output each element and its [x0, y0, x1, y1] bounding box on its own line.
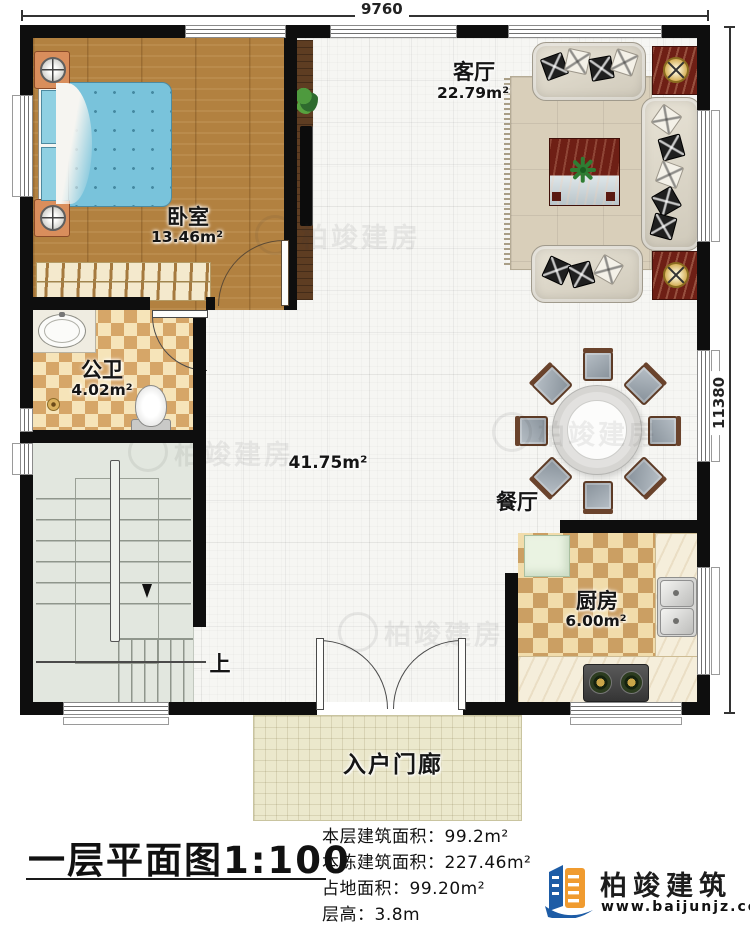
- table-lamp-icon: [40, 57, 66, 83]
- window: [697, 350, 710, 462]
- room-area-living: 22.79m²: [437, 84, 509, 102]
- toilet-bowl: [135, 385, 167, 427]
- entrance-door-leaf: [458, 638, 466, 710]
- floor-drain-icon: [47, 398, 60, 411]
- window: [508, 25, 662, 38]
- wall-segment: [193, 310, 206, 443]
- wall-segment: [697, 673, 710, 715]
- table-lamp-icon: [40, 205, 66, 231]
- wall-segment: [505, 573, 518, 702]
- room-label-dining: 餐厅: [496, 486, 538, 516]
- dimension-tick: [21, 10, 23, 21]
- wall-segment: [206, 297, 215, 310]
- wall-segment: [20, 195, 33, 408]
- wall-segment: [284, 25, 330, 38]
- wall-segment: [167, 702, 317, 715]
- stat-colon: ：: [427, 827, 445, 847]
- window-sill: [711, 110, 720, 242]
- sink-drain-icon: [673, 590, 679, 596]
- watermark-text: 柏竣建房: [384, 613, 504, 652]
- window: [20, 443, 33, 475]
- stair-direction-arrow-icon: [142, 584, 152, 598]
- window: [697, 567, 710, 675]
- pillow: [564, 48, 591, 75]
- stat-colon: ：: [427, 853, 445, 873]
- bathroom-sink-basin: [44, 319, 80, 343]
- stat-row: 本栋建筑面积：227.46m²: [322, 848, 531, 873]
- title-underline: [26, 878, 326, 880]
- window: [20, 95, 33, 197]
- wall-segment: [20, 25, 185, 38]
- window-sill: [570, 717, 682, 725]
- dining-chair: [583, 351, 613, 381]
- stat-label: 本层建筑面积: [322, 827, 427, 847]
- wall-segment: [697, 25, 710, 110]
- plan-title: 一层平面图: [28, 839, 223, 882]
- wall-segment: [20, 473, 33, 715]
- stat-value: 227.46m²: [445, 853, 532, 873]
- coffee-table-leg: [552, 192, 561, 201]
- stair-treads: [36, 498, 110, 608]
- stat-colon: ：: [357, 905, 375, 925]
- stat-row: 层高：3.8m: [322, 900, 420, 925]
- stat-colon: ：: [392, 879, 410, 899]
- floor-plan-page: 9760 11380: [0, 0, 750, 930]
- coffee-table-leg: [606, 192, 615, 201]
- fridge: [524, 535, 570, 577]
- stair-rail: [110, 460, 120, 642]
- wall-segment: [455, 25, 508, 38]
- watermark-text: 柏竣建房: [301, 216, 421, 255]
- window-sill: [63, 717, 169, 725]
- room-label-bedroom: 卧室: [167, 201, 209, 231]
- brand-logo-icon: [543, 860, 595, 918]
- stair-guide-line: [36, 661, 206, 663]
- stove-burner-icon: [620, 671, 643, 694]
- window: [20, 408, 33, 432]
- brand-name: 柏竣建筑: [600, 864, 732, 903]
- wall-segment: [33, 297, 150, 310]
- watermark-ring-icon: [492, 412, 532, 452]
- wall-segment: [20, 430, 206, 443]
- room-label-living: 客厅: [453, 56, 495, 86]
- watermark: 柏竣建房: [492, 412, 658, 452]
- dimension-tick: [724, 26, 735, 28]
- faucet-icon: [59, 312, 65, 317]
- wall-segment: [697, 460, 710, 567]
- window: [63, 702, 169, 715]
- watermark-text: 柏竣建房: [538, 413, 658, 452]
- dining-chair: [583, 481, 613, 511]
- dimension-label-height: 11380: [710, 371, 728, 435]
- room-label-kitchen: 厨房: [576, 585, 618, 615]
- stair-treads: [118, 498, 191, 608]
- wardrobe: [36, 262, 211, 301]
- room-label-porch: 入户门廊: [343, 745, 443, 779]
- wall-segment: [20, 25, 33, 95]
- window: [697, 110, 710, 242]
- room-area-hall: 41.75m²: [289, 453, 368, 473]
- wall-segment: [697, 240, 710, 350]
- stat-row: 占地面积：99.20m²: [322, 874, 485, 899]
- stat-row: 本层建筑面积：99.2m²: [322, 822, 509, 847]
- window: [330, 25, 457, 38]
- stat-value: 99.2m²: [445, 827, 509, 847]
- wall-segment: [463, 702, 570, 715]
- window: [185, 25, 286, 38]
- stair-treads: [118, 640, 193, 702]
- brand-website[interactable]: www.baijunjz.com: [601, 899, 750, 915]
- room-area-bedroom: 13.46m²: [151, 228, 223, 246]
- stat-label: 层高: [322, 905, 357, 925]
- plant-center: [580, 167, 586, 173]
- dimension-tick: [707, 10, 709, 21]
- bedroom-door-leaf: [281, 240, 289, 306]
- dimension-tick: [724, 712, 735, 714]
- wall-segment: [560, 520, 710, 533]
- watermark: 柏竣建房: [338, 612, 504, 652]
- tv: [300, 126, 313, 226]
- plant-icon: [569, 156, 597, 184]
- sink-drain-icon: [673, 618, 679, 624]
- stat-value: 3.8m: [375, 905, 421, 925]
- entrance-door-leaf: [316, 638, 324, 710]
- stairs-up-label: 上: [210, 648, 231, 678]
- window: [570, 702, 682, 715]
- rug-fringe: [504, 78, 510, 266]
- stat-label: 占地面积: [322, 879, 392, 899]
- room-area-bathroom: 4.02m²: [71, 381, 132, 399]
- room-area-kitchen: 6.00m²: [565, 612, 626, 630]
- watermark-ring-icon: [338, 612, 378, 652]
- wall-segment: [193, 443, 206, 627]
- dimension-line-right: [729, 27, 731, 713]
- stove-burner-icon: [589, 671, 612, 694]
- brand-logo-svg: [543, 860, 595, 918]
- window-sill: [711, 567, 720, 675]
- page-title: 一层平面图1:100: [28, 830, 351, 884]
- stat-label: 本栋建筑面积: [322, 853, 427, 873]
- watermark: 柏竣建房: [255, 215, 421, 255]
- bathroom-door-leaf: [152, 310, 208, 318]
- dimension-label-width: 9760: [355, 0, 409, 18]
- plant-icon: [294, 84, 318, 114]
- stat-value: 99.20m²: [410, 879, 486, 899]
- room-label-bathroom: 公卫: [81, 354, 123, 384]
